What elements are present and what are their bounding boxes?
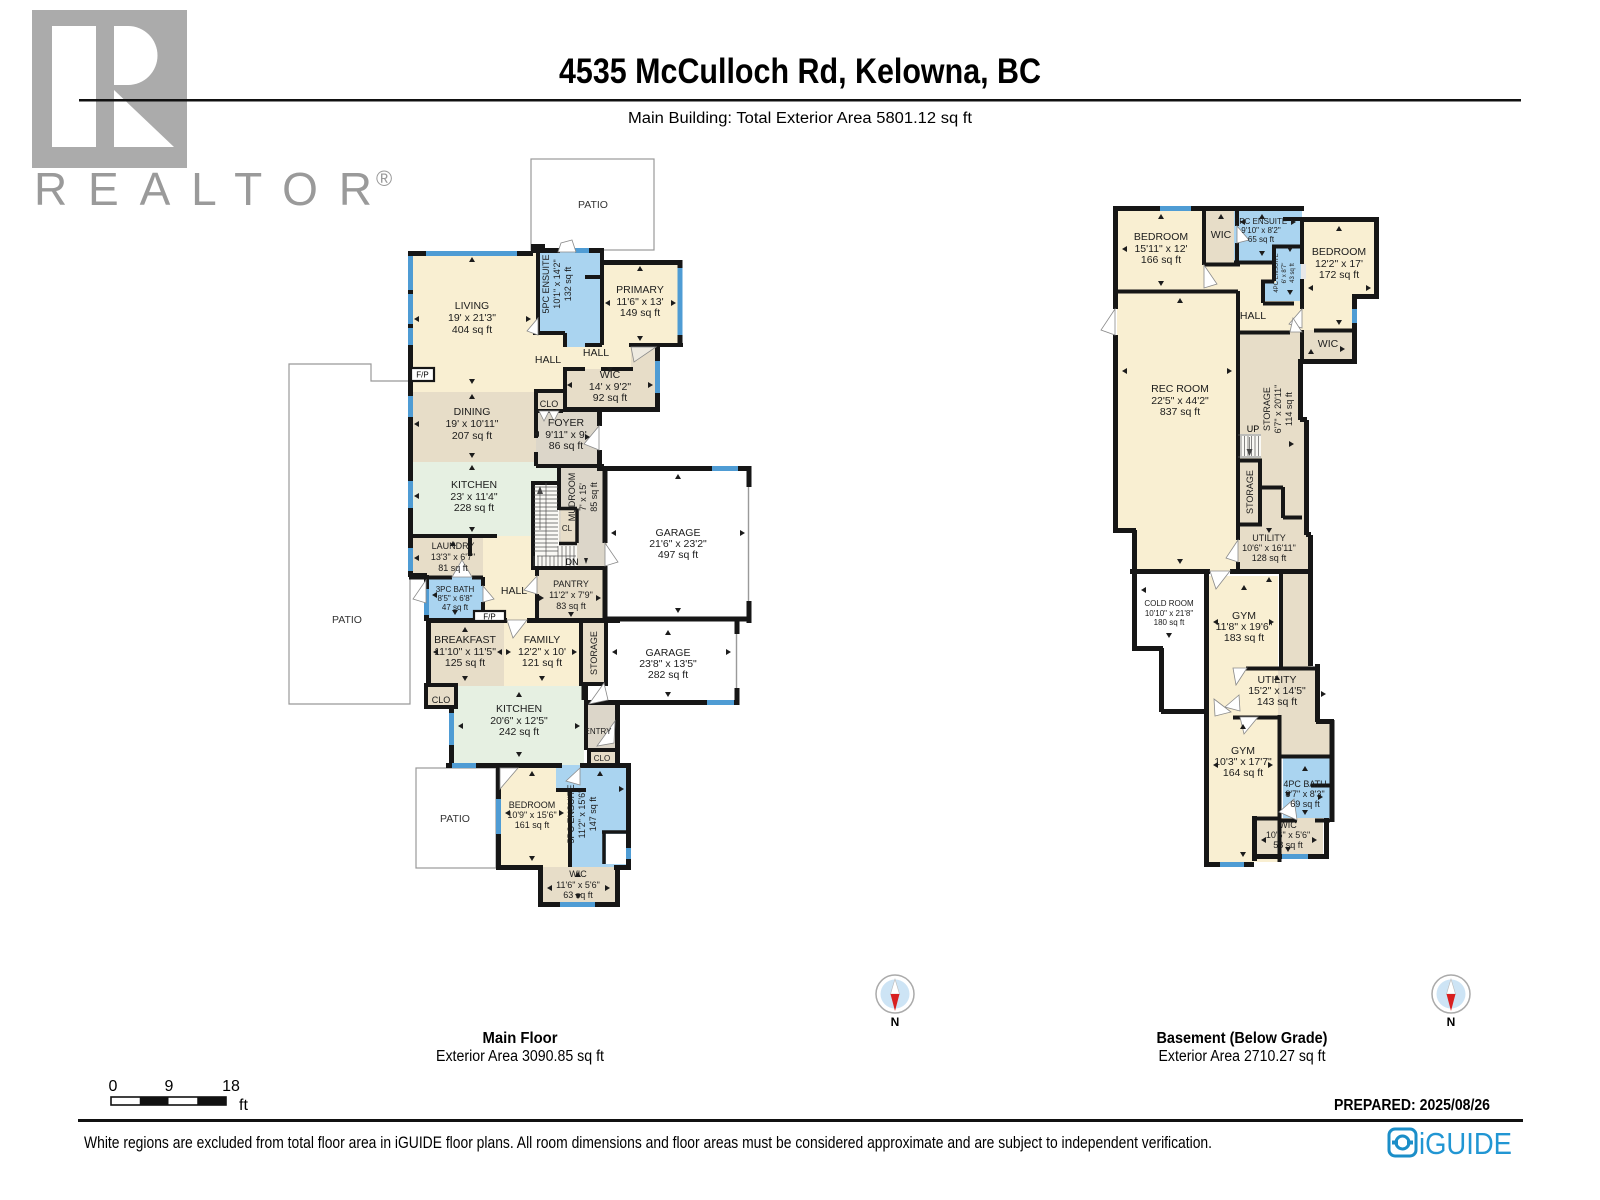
svg-text:83 sq ft: 83 sq ft — [556, 601, 586, 611]
svg-text:5PC ENSUITE: 5PC ENSUITE — [541, 254, 551, 313]
svg-text:7' x 15': 7' x 15' — [578, 483, 588, 511]
svg-text:86 sq ft: 86 sq ft — [549, 440, 584, 452]
svg-text:STORAGE: STORAGE — [1262, 387, 1272, 431]
svg-text:11'2" x 7'9": 11'2" x 7'9" — [549, 590, 593, 600]
svg-text:128 sq ft: 128 sq ft — [1252, 553, 1287, 563]
svg-text:PREPARED: 2025/08/26: PREPARED: 2025/08/26 — [1334, 1097, 1490, 1114]
svg-text:65 sq ft: 65 sq ft — [1248, 235, 1275, 244]
svg-text:Basement (Below Grade): Basement (Below Grade) — [1157, 1030, 1328, 1047]
svg-text:FAMILY: FAMILY — [524, 634, 561, 646]
svg-text:Exterior Area 2710.27 sq ft: Exterior Area 2710.27 sq ft — [1159, 1048, 1327, 1065]
svg-text:10'10" x 21'8": 10'10" x 21'8" — [1145, 609, 1193, 618]
svg-text:CLO: CLO — [540, 399, 559, 409]
svg-text:143 sq ft: 143 sq ft — [1257, 696, 1297, 708]
svg-text:N: N — [1447, 1015, 1456, 1029]
svg-text:6' x 8'7": 6' x 8'7" — [1282, 263, 1288, 284]
svg-text:WIC: WIC — [1211, 229, 1232, 241]
svg-text:11'6" x 5'6": 11'6" x 5'6" — [556, 880, 600, 890]
svg-text:228 sq ft: 228 sq ft — [454, 502, 494, 514]
svg-text:11'2" x 15'6": 11'2" x 15'6" — [577, 790, 587, 839]
svg-text:UTILITY: UTILITY — [1252, 533, 1286, 543]
svg-text:CL: CL — [562, 524, 573, 533]
svg-text:DN: DN — [566, 557, 579, 567]
svg-text:Main Building: Total Exterior: Main Building: Total Exterior Area 5801.… — [628, 110, 973, 127]
svg-text:164 sq ft: 164 sq ft — [1223, 767, 1263, 779]
svg-text:10'6" x 5'6": 10'6" x 5'6" — [1266, 830, 1310, 840]
svg-text:282 sq ft: 282 sq ft — [648, 669, 688, 681]
svg-text:PATIO: PATIO — [578, 199, 608, 211]
svg-text:Exterior Area 3090.85 sq ft: Exterior Area 3090.85 sq ft — [436, 1048, 605, 1065]
svg-text:43 sq ft: 43 sq ft — [1290, 263, 1296, 283]
svg-text:KITCHEN: KITCHEN — [496, 703, 542, 715]
svg-text:ft: ft — [239, 1097, 248, 1114]
svg-text:HALL: HALL — [535, 354, 561, 366]
svg-text:F/P: F/P — [483, 613, 495, 622]
svg-text:5PC ENSUITE: 5PC ENSUITE — [566, 784, 576, 843]
svg-text:837 sq ft: 837 sq ft — [1160, 406, 1200, 418]
svg-text:10'6" x 16'11": 10'6" x 16'11" — [1242, 543, 1296, 553]
svg-text:ENTRY: ENTRY — [585, 727, 613, 736]
svg-text:161 sq ft: 161 sq ft — [515, 820, 550, 830]
svg-text:132 sq ft: 132 sq ft — [563, 266, 573, 301]
svg-text:404 sq ft: 404 sq ft — [452, 324, 492, 336]
svg-text:0: 0 — [109, 1078, 118, 1095]
svg-text:BEDROOM: BEDROOM — [509, 800, 556, 810]
svg-text:497 sq ft: 497 sq ft — [658, 549, 698, 561]
svg-text:3PC BATH: 3PC BATH — [436, 585, 475, 594]
svg-text:180 sq ft: 180 sq ft — [1154, 618, 1185, 627]
svg-text:125 sq ft: 125 sq ft — [445, 657, 485, 669]
svg-text:COLD ROOM: COLD ROOM — [1144, 599, 1194, 608]
svg-text:FOYER: FOYER — [548, 417, 585, 429]
svg-text:STORAGE: STORAGE — [589, 631, 599, 675]
svg-text:121 sq ft: 121 sq ft — [522, 657, 562, 669]
svg-text:85 sq ft: 85 sq ft — [589, 482, 599, 512]
svg-text:N: N — [891, 1015, 900, 1029]
svg-text:UP: UP — [1247, 424, 1260, 434]
svg-text:STORAGE: STORAGE — [1245, 470, 1255, 514]
svg-text:F/P: F/P — [416, 371, 428, 380]
svg-text:HALL: HALL — [583, 347, 609, 359]
svg-text:166 sq ft: 166 sq ft — [1141, 254, 1181, 266]
svg-text:BEDROOM: BEDROOM — [1312, 246, 1366, 258]
svg-text:PRIMARY: PRIMARY — [616, 284, 664, 296]
svg-text:242 sq ft: 242 sq ft — [499, 726, 539, 738]
svg-text:147 sq ft: 147 sq ft — [588, 796, 598, 831]
svg-text:4PC BATH: 4PC BATH — [1283, 779, 1326, 789]
svg-text:DINING: DINING — [454, 406, 491, 418]
svg-text:13'3" x 6'7": 13'3" x 6'7" — [431, 552, 475, 562]
svg-text:BREAKFAST: BREAKFAST — [434, 634, 496, 646]
svg-text:4535 McCulloch Rd, Kelowna, BC: 4535 McCulloch Rd, Kelowna, BC — [559, 52, 1041, 91]
svg-text:6'7" x 20'11": 6'7" x 20'11" — [1273, 385, 1283, 434]
svg-text:®: ® — [376, 166, 392, 191]
svg-text:CLO: CLO — [432, 695, 451, 705]
svg-text:69 sq ft: 69 sq ft — [1290, 799, 1320, 809]
svg-text:KITCHEN: KITCHEN — [451, 479, 497, 491]
svg-text:207 sq ft: 207 sq ft — [452, 430, 492, 442]
svg-text:114 sq ft: 114 sq ft — [1284, 392, 1294, 426]
svg-text:92 sq ft: 92 sq ft — [593, 392, 628, 404]
svg-text:183 sq ft: 183 sq ft — [1224, 632, 1264, 644]
svg-text:BEDROOM: BEDROOM — [1134, 231, 1188, 243]
svg-text:8'5" x 6'8": 8'5" x 6'8" — [438, 594, 473, 603]
svg-text:149 sq ft: 149 sq ft — [620, 307, 660, 319]
svg-text:PATIO: PATIO — [440, 813, 470, 825]
svg-text:CLO: CLO — [594, 754, 610, 763]
svg-text:18: 18 — [222, 1078, 240, 1095]
svg-text:REC ROOM: REC ROOM — [1151, 383, 1209, 395]
svg-text:White regions are excluded fro: White regions are excluded from total fl… — [84, 1133, 1212, 1152]
svg-text:9: 9 — [165, 1078, 174, 1095]
svg-text:Main Floor: Main Floor — [483, 1030, 558, 1047]
svg-text:10'9" x 15'6": 10'9" x 15'6" — [507, 810, 556, 820]
svg-text:HALL: HALL — [501, 585, 527, 597]
svg-text:9'10" x 8'2": 9'10" x 8'2" — [1241, 226, 1281, 235]
svg-text:WIC: WIC — [1279, 820, 1297, 830]
svg-text:iGUIDE: iGUIDE — [1419, 1126, 1512, 1161]
svg-text:MUDROOM: MUDROOM — [567, 473, 577, 522]
svg-text:19' x 21'3": 19' x 21'3" — [448, 312, 496, 324]
svg-text:HALL: HALL — [1240, 310, 1266, 322]
svg-text:PANTRY: PANTRY — [553, 579, 589, 589]
svg-text:19' x 10'11": 19' x 10'11" — [445, 418, 498, 430]
svg-text:WIC: WIC — [1318, 338, 1339, 350]
svg-text:10'1" x 14'2": 10'1" x 14'2" — [552, 259, 562, 308]
svg-text:4PC ENSUITE: 4PC ENSUITE — [1274, 253, 1280, 292]
svg-text:81 sq ft: 81 sq ft — [438, 563, 468, 573]
svg-text:LIVING: LIVING — [455, 300, 489, 312]
svg-text:172 sq ft: 172 sq ft — [1319, 269, 1359, 281]
svg-text:PATIO: PATIO — [332, 614, 362, 626]
